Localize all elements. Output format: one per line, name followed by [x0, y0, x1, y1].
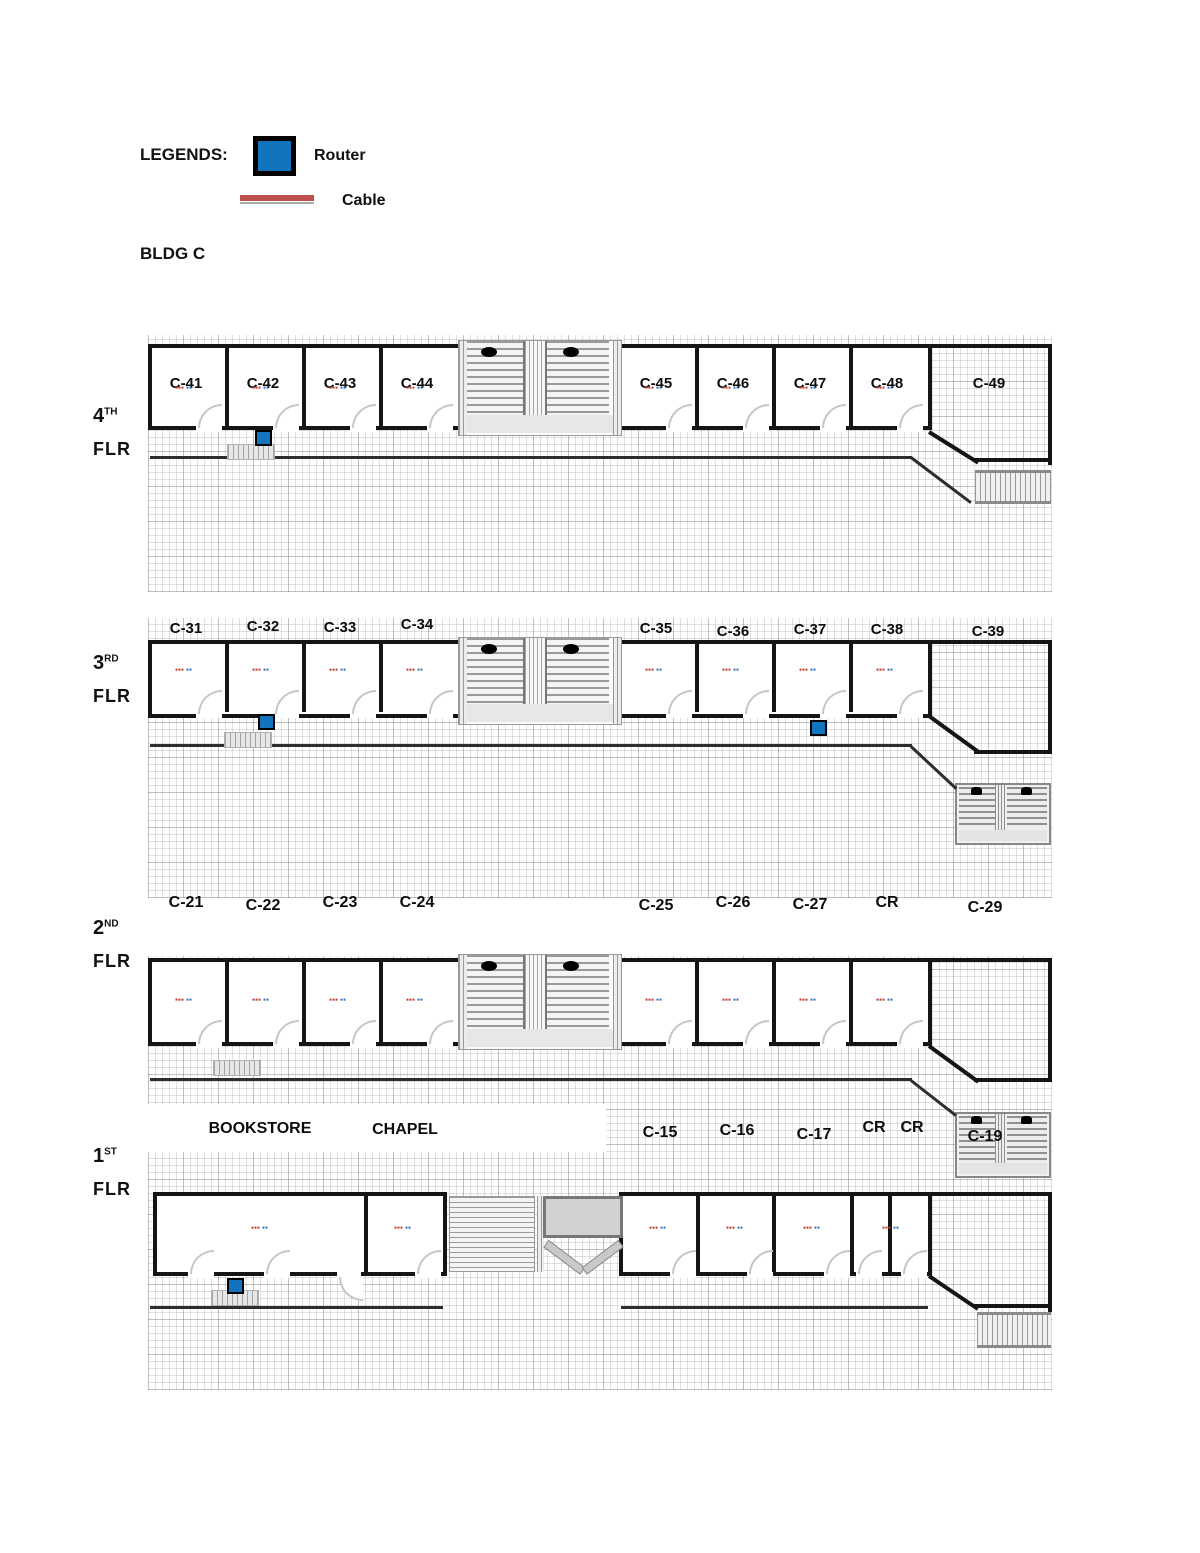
room-label: CR	[892, 1119, 932, 1137]
room-label: C-37	[778, 621, 842, 638]
room-label: BOOKSTORE	[190, 1120, 330, 1138]
room-divider-wall	[225, 962, 229, 1042]
ip-mark: ▪▪▪▪▪	[252, 668, 269, 673]
ip-mark-red: ▪▪▪	[722, 668, 731, 673]
ip-mark-blue: ▪▪	[417, 998, 423, 1003]
ip-mark-red: ▪▪▪	[406, 668, 415, 673]
ip-mark-red: ▪▪▪	[645, 668, 654, 673]
room-divider-wall	[888, 1196, 892, 1272]
room-label: C-19	[952, 1128, 1018, 1146]
cable-legend-icon	[240, 195, 314, 201]
room-divider-wall	[849, 962, 853, 1042]
ip-mark-blue: ▪▪	[340, 668, 346, 673]
stair-divider	[523, 955, 547, 1031]
stair-landing-dot	[563, 961, 579, 971]
router-3rd-c32	[258, 714, 275, 730]
ip-mark-blue: ▪▪	[417, 386, 423, 391]
c29-top-wall	[928, 958, 1052, 962]
ip-mark: ▪▪▪▪▪	[876, 386, 893, 391]
ip-mark-red: ▪▪▪	[722, 998, 731, 1003]
ip-mark-blue: ▪▪	[186, 998, 192, 1003]
ip-mark-blue: ▪▪	[893, 1226, 899, 1231]
room-label: C-16	[705, 1122, 769, 1140]
room-label: C-29	[952, 899, 1018, 917]
stair-landing-dot	[563, 347, 579, 357]
room-label: C-31	[154, 620, 218, 637]
ip-mark: ▪▪▪▪▪	[726, 1226, 743, 1231]
ip-mark-red: ▪▪▪	[876, 386, 885, 391]
room-divider-wall	[695, 644, 699, 712]
stair-divider	[523, 638, 547, 706]
ip-mark: ▪▪▪▪▪	[394, 1226, 411, 1231]
ip-mark: ▪▪▪▪▪	[722, 386, 739, 391]
ip-mark-red: ▪▪▪	[799, 998, 808, 1003]
room-label: CR	[855, 894, 919, 912]
stair-landing	[467, 415, 613, 433]
ip-mark-blue: ▪▪	[656, 386, 662, 391]
c29-right-wall	[1048, 958, 1052, 1082]
room-divider-wall	[696, 1196, 700, 1272]
ip-mark-blue: ▪▪	[660, 1226, 666, 1231]
room-label: C-27	[778, 896, 842, 914]
c49-bottom-wall	[974, 458, 1052, 462]
ip-mark: ▪▪▪▪▪	[803, 1226, 820, 1231]
cable-tray-3rd	[224, 732, 272, 748]
router-1st-bookstore	[227, 1278, 244, 1294]
ip-mark-red: ▪▪▪	[799, 668, 808, 673]
router-3rd-c37	[810, 720, 827, 736]
room-divider-wall	[225, 644, 229, 712]
stair-side-hatch	[613, 955, 621, 1049]
ip-mark: ▪▪▪▪▪	[252, 386, 269, 391]
room-divider-wall	[302, 348, 306, 426]
room-divider-wall	[849, 348, 853, 426]
ip-mark-red: ▪▪▪	[726, 1226, 735, 1231]
c19-top-wall	[928, 1192, 1052, 1196]
room-divider-wall	[772, 644, 776, 712]
ip-mark-blue: ▪▪	[405, 1226, 411, 1231]
c39-right-wall	[1048, 640, 1052, 754]
room-label: C-23	[308, 894, 372, 912]
room-label: C-38	[855, 621, 919, 638]
room-label: C-22	[231, 897, 295, 915]
ip-mark: ▪▪▪▪▪	[251, 1226, 268, 1231]
ip-mark-red: ▪▪▪	[645, 998, 654, 1003]
ip-mark: ▪▪▪▪▪	[882, 1226, 899, 1231]
room-label: C-17	[782, 1126, 846, 1144]
room-label: CHAPEL	[357, 1121, 453, 1139]
stair-side-hatch	[459, 955, 467, 1049]
room-label: C-32	[231, 618, 295, 635]
room-divider-wall	[379, 348, 383, 426]
ip-mark-blue: ▪▪	[887, 668, 893, 673]
ip-mark-red: ▪▪▪	[876, 668, 885, 673]
room-divider-wall	[302, 644, 306, 712]
room-label: C-21	[154, 894, 218, 912]
ip-mark: ▪▪▪▪▪	[649, 1226, 666, 1231]
ip-mark-red: ▪▪▪	[882, 1226, 891, 1231]
c39-top-wall	[928, 640, 1052, 644]
ip-mark-red: ▪▪▪	[252, 386, 261, 391]
ip-mark: ▪▪▪▪▪	[645, 386, 662, 391]
ip-mark-blue: ▪▪	[887, 998, 893, 1003]
ip-mark: ▪▪▪▪▪	[722, 668, 739, 673]
c29-bottom-wall	[974, 1078, 1052, 1082]
ip-mark: ▪▪▪▪▪	[252, 998, 269, 1003]
ip-mark-red: ▪▪▪	[175, 386, 184, 391]
ip-mark-red: ▪▪▪	[803, 1226, 812, 1231]
stair-side-hatch	[459, 638, 467, 724]
stair-divider	[995, 785, 1007, 831]
ip-mark-blue: ▪▪	[733, 668, 739, 673]
stair-side-hatch	[613, 638, 621, 724]
ip-mark: ▪▪▪▪▪	[175, 386, 192, 391]
ip-mark-red: ▪▪▪	[876, 998, 885, 1003]
ip-mark: ▪▪▪▪▪	[329, 668, 346, 673]
floor-label-4th: 4TH FLR	[93, 405, 131, 460]
side-stairs-3rd	[955, 783, 1051, 845]
ip-mark-blue: ▪▪	[263, 668, 269, 673]
cable-tray-2nd	[213, 1060, 261, 1076]
ip-mark-red: ▪▪▪	[799, 386, 808, 391]
stair-side-hatch	[459, 341, 467, 435]
ip-mark-blue: ▪▪	[656, 998, 662, 1003]
ip-mark-blue: ▪▪	[810, 998, 816, 1003]
ip-mark-blue: ▪▪	[263, 998, 269, 1003]
legend-cable-label: Cable	[342, 192, 386, 210]
legend-title: LEGENDS:	[140, 145, 228, 165]
room-divider-wall	[772, 962, 776, 1042]
ip-mark-red: ▪▪▪	[329, 386, 338, 391]
stair-landing-dot	[971, 787, 982, 795]
ip-mark-red: ▪▪▪	[329, 668, 338, 673]
cable-run-1st-right	[621, 1306, 928, 1309]
ip-mark-blue: ▪▪	[186, 386, 192, 391]
stair-side-hatch	[613, 341, 621, 435]
stairwell-center-4th	[458, 340, 622, 436]
c19-bottom-wall	[974, 1304, 1052, 1308]
room-divider-wall	[695, 962, 699, 1042]
ip-mark-blue: ▪▪	[656, 668, 662, 673]
room-label: C-33	[308, 619, 372, 636]
room-label: C-25	[624, 897, 688, 915]
ip-mark: ▪▪▪▪▪	[876, 668, 893, 673]
stair-landing-dot	[971, 1116, 982, 1124]
ip-mark-blue: ▪▪	[262, 1226, 268, 1231]
room-label: C-24	[385, 894, 449, 912]
stair-landing	[467, 704, 613, 722]
ip-mark: ▪▪▪▪▪	[406, 386, 423, 391]
ip-mark-blue: ▪▪	[733, 386, 739, 391]
floor-label-3rd: 3RD FLR	[93, 652, 131, 707]
c19-right-wall	[1048, 1192, 1052, 1312]
ip-mark: ▪▪▪▪▪	[406, 998, 423, 1003]
ip-mark-blue: ▪▪	[810, 668, 816, 673]
exterior-stairs-1st	[977, 1312, 1051, 1348]
ip-mark: ▪▪▪▪▪	[175, 998, 192, 1003]
ip-mark-blue: ▪▪	[733, 998, 739, 1003]
stairwell-center-3rd	[458, 637, 622, 725]
c49-top-wall	[928, 344, 1052, 348]
legend-router-label: Router	[314, 147, 366, 165]
room-divider-wall	[302, 962, 306, 1042]
ip-mark-blue: ▪▪	[340, 998, 346, 1003]
room-label: C-39	[955, 623, 1021, 640]
ip-mark-red: ▪▪▪	[406, 386, 415, 391]
ip-mark: ▪▪▪▪▪	[799, 386, 816, 391]
ip-mark-blue: ▪▪	[340, 386, 346, 391]
ip-mark-blue: ▪▪	[814, 1226, 820, 1231]
stair-landing-dot	[481, 347, 497, 357]
c39-bottom-wall	[974, 750, 1052, 754]
ip-mark: ▪▪▪▪▪	[799, 998, 816, 1003]
room-divider-wall	[225, 348, 229, 426]
floor-label-2nd: 2ND FLR	[93, 917, 131, 972]
building-title: BLDG C	[140, 244, 205, 264]
stair-landing	[959, 1163, 1047, 1174]
room-label: CR	[854, 1119, 894, 1137]
ip-mark: ▪▪▪▪▪	[645, 668, 662, 673]
ip-mark: ▪▪▪▪▪	[876, 998, 893, 1003]
room-divider-wall	[379, 644, 383, 712]
ip-mark-blue: ▪▪	[887, 386, 893, 391]
stair-landing-dot	[481, 644, 497, 654]
c49-right-wall	[1048, 344, 1052, 465]
cable-run-2nd	[150, 1078, 912, 1081]
ip-mark-blue: ▪▪	[810, 386, 816, 391]
ip-mark-red: ▪▪▪	[394, 1226, 403, 1231]
stair-landing-dot	[481, 961, 497, 971]
ip-mark-red: ▪▪▪	[251, 1226, 260, 1231]
cable-tray-4th	[227, 444, 275, 460]
ip-mark: ▪▪▪▪▪	[329, 998, 346, 1003]
room-divider-wall	[695, 348, 699, 426]
room-label: C-36	[701, 623, 765, 640]
ip-mark: ▪▪▪▪▪	[645, 998, 662, 1003]
room-divider-wall	[379, 962, 383, 1042]
ip-mark-red: ▪▪▪	[175, 668, 184, 673]
ip-mark-red: ▪▪▪	[252, 998, 261, 1003]
ip-mark-blue: ▪▪	[263, 386, 269, 391]
room-divider-wall	[849, 644, 853, 712]
room-label: C-15	[628, 1124, 692, 1142]
ip-mark: ▪▪▪▪▪	[329, 386, 346, 391]
entrance-canopy	[543, 1196, 623, 1238]
room-divider-wall	[364, 1196, 368, 1272]
stairs-1st-left	[449, 1196, 535, 1272]
floorplan-diagram: LEGENDS: Router Cable BLDG C 4TH FLR 3RD…	[0, 0, 1200, 1553]
exterior-stairs-4th	[975, 470, 1051, 504]
stair-landing-dot	[1021, 1116, 1032, 1124]
stair-landing-dot	[1021, 787, 1032, 795]
ip-mark: ▪▪▪▪▪	[799, 668, 816, 673]
floor-label-1st: 1ST FLR	[93, 1145, 131, 1200]
room-label: C-34	[385, 616, 449, 633]
ip-mark-red: ▪▪▪	[252, 668, 261, 673]
room-label: C-49	[956, 375, 1022, 392]
ip-mark-blue: ▪▪	[417, 668, 423, 673]
ip-mark: ▪▪▪▪▪	[175, 668, 192, 673]
ip-mark: ▪▪▪▪▪	[406, 668, 423, 673]
room-label: C-26	[701, 894, 765, 912]
ip-mark-blue: ▪▪	[737, 1226, 743, 1231]
stair-divider	[523, 341, 547, 417]
stair-landing-dot	[563, 644, 579, 654]
room-label: C-35	[624, 620, 688, 637]
ip-mark: ▪▪▪▪▪	[722, 998, 739, 1003]
ip-mark-red: ▪▪▪	[406, 998, 415, 1003]
ip-mark-red: ▪▪▪	[645, 386, 654, 391]
ip-mark-red: ▪▪▪	[649, 1226, 658, 1231]
ip-mark-red: ▪▪▪	[329, 998, 338, 1003]
router-4th-c42	[255, 430, 272, 446]
ip-mark-blue: ▪▪	[186, 668, 192, 673]
ip-mark-red: ▪▪▪	[175, 998, 184, 1003]
ip-mark-red: ▪▪▪	[722, 386, 731, 391]
room-divider-wall	[772, 348, 776, 426]
room-divider-wall	[850, 1196, 854, 1272]
stair-landing	[959, 830, 1047, 841]
cable-legend-icon-shadow	[240, 202, 314, 204]
cable-run-1st-left	[150, 1306, 443, 1309]
stairwell-center-2nd	[458, 954, 622, 1050]
router-legend-icon	[253, 136, 296, 176]
stair-landing	[467, 1029, 613, 1047]
